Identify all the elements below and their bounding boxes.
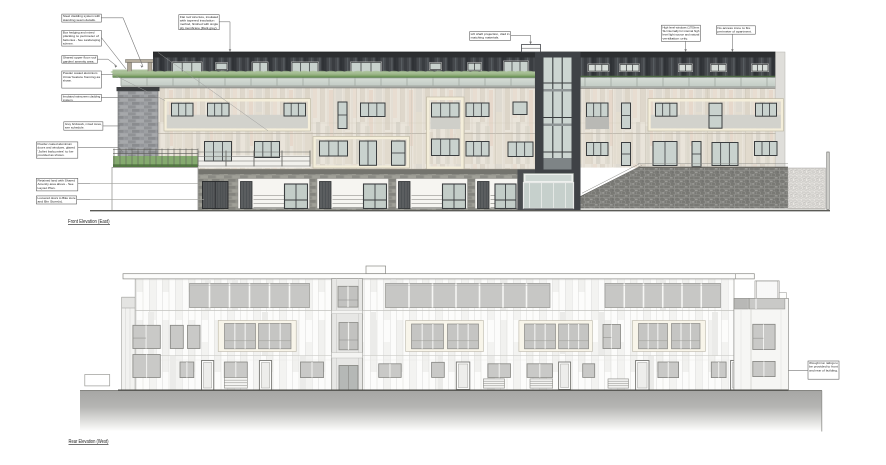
svg-text:standing seam details.: standing seam details.	[63, 18, 96, 22]
svg-text:perimeter of apartment.: perimeter of apartment.	[717, 30, 752, 34]
svg-text:ply membrane (Dark grey).: ply membrane (Dark grey).	[180, 26, 218, 30]
svg-text:ventilation only.: ventilation only.	[663, 36, 689, 40]
svg-text:shown.: shown.	[63, 79, 72, 83]
svg-text:garden/ amenity area.: garden/ amenity area.	[63, 59, 95, 63]
svg-text:system.: system.	[63, 98, 74, 102]
svg-text:provided as shown.: provided as shown.	[38, 153, 65, 157]
svg-text:and Bin Store(s).: and Bin Store(s).	[38, 200, 64, 204]
svg-text:scheme.: scheme.	[63, 42, 74, 46]
svg-text:see schedule.: see schedule.	[65, 126, 85, 130]
svg-text:Layout Plan.: Layout Plan.	[38, 186, 56, 190]
svg-text:and rear of building.: and rear of building.	[809, 368, 838, 372]
svg-text:matching materials.: matching materials.	[471, 36, 500, 40]
